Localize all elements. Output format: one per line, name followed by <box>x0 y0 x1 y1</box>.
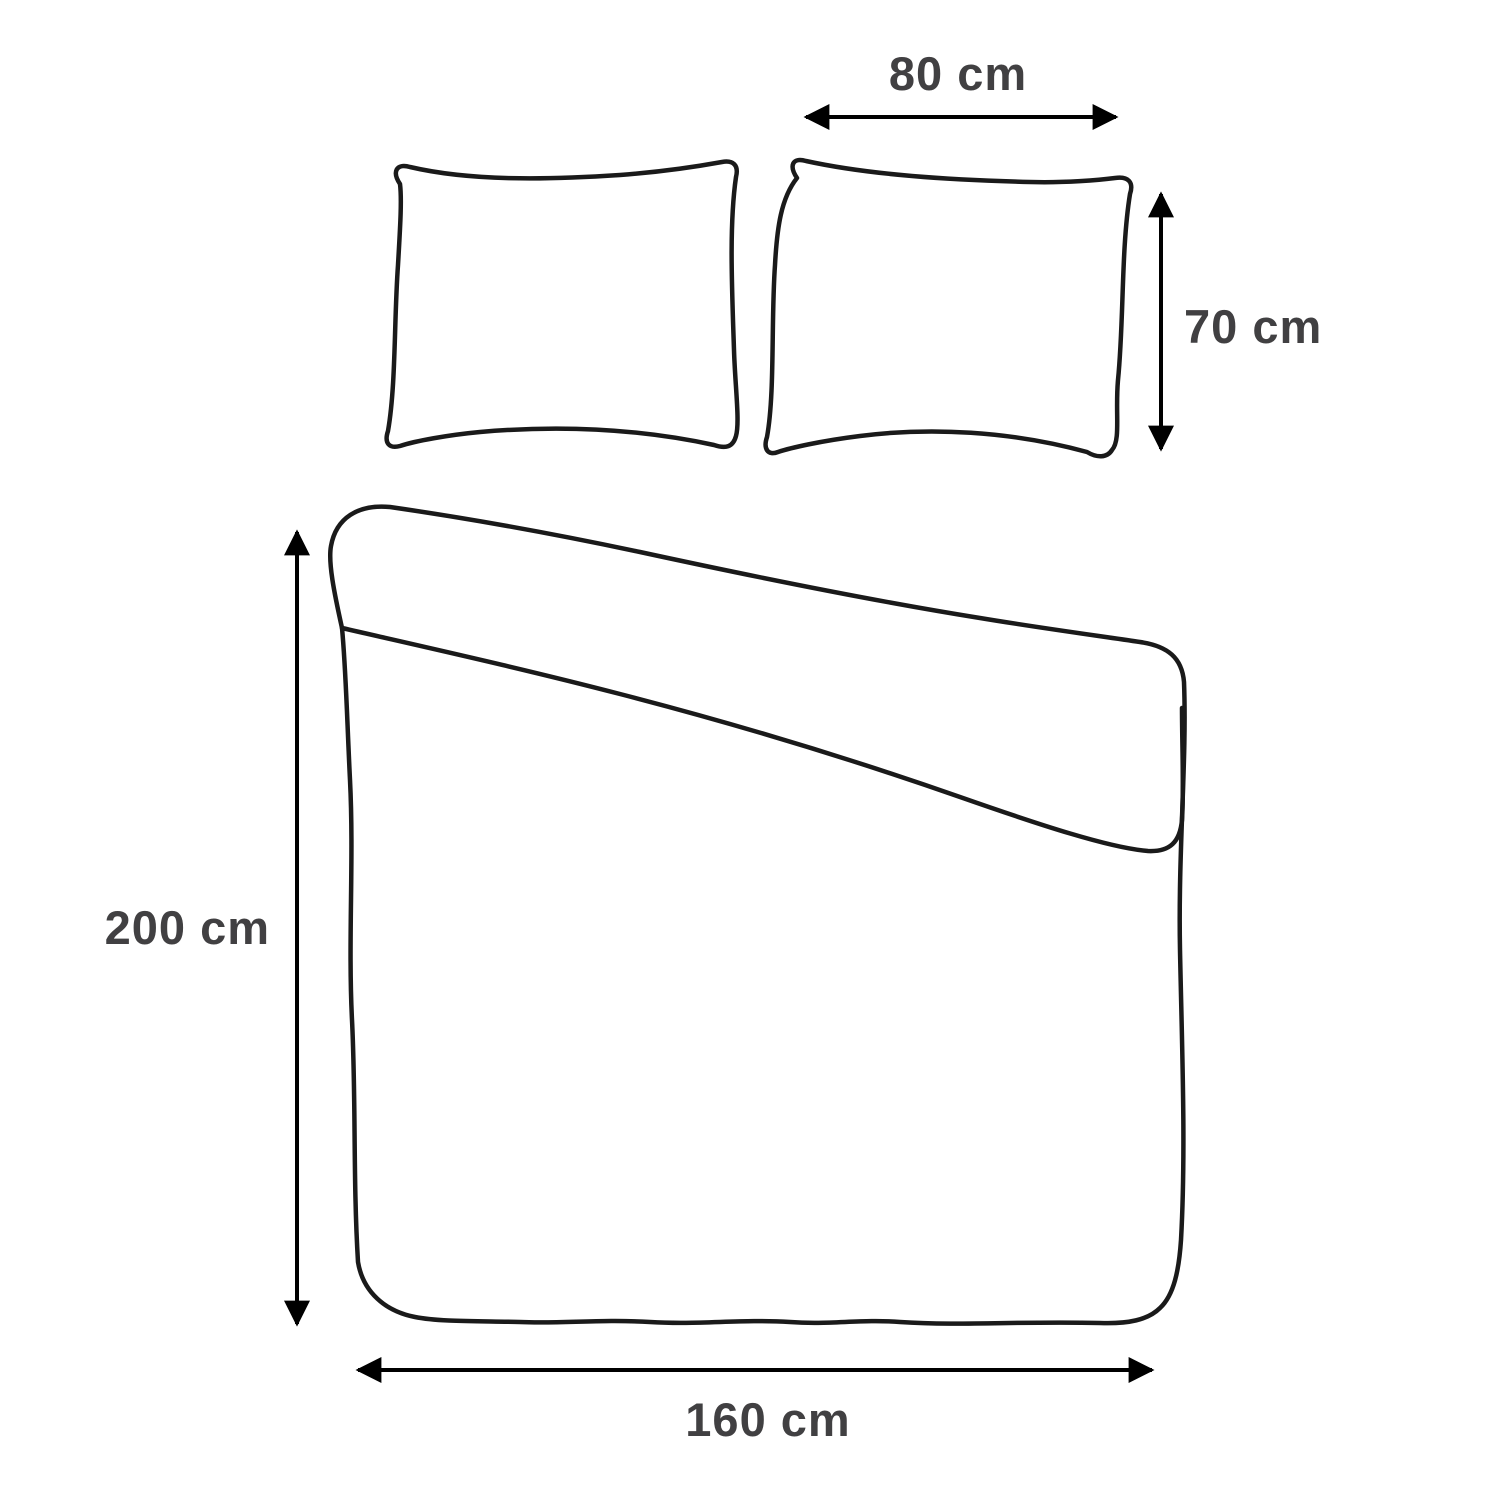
duvet-width-label: 160 cm <box>685 1393 850 1446</box>
duvet-outline <box>330 507 1184 1324</box>
bedding-dimensions-diagram: 80 cm 70 cm 200 cm 160 cm <box>0 0 1500 1500</box>
duvet-height-label: 200 cm <box>105 901 270 954</box>
pillowcase-left-outline <box>387 162 738 447</box>
pillow-height-label: 70 cm <box>1184 300 1322 353</box>
pillow-width-label: 80 cm <box>889 47 1027 100</box>
diagram-canvas: 80 cm 70 cm 200 cm 160 cm <box>0 0 1500 1500</box>
pillowcase-right-outline <box>766 160 1132 456</box>
duvet-fold-line <box>342 628 1183 851</box>
